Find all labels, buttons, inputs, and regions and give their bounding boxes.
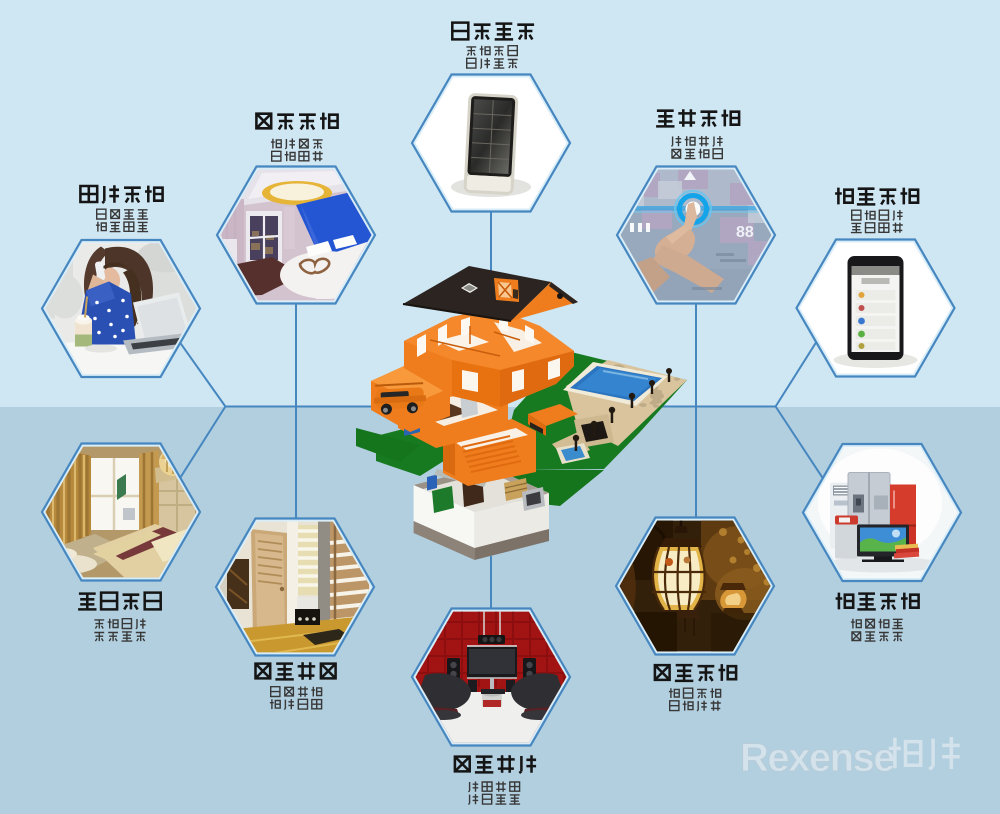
svg-text:88: 88	[736, 224, 754, 241]
svg-text:Rexense: Rexense	[740, 736, 894, 780]
